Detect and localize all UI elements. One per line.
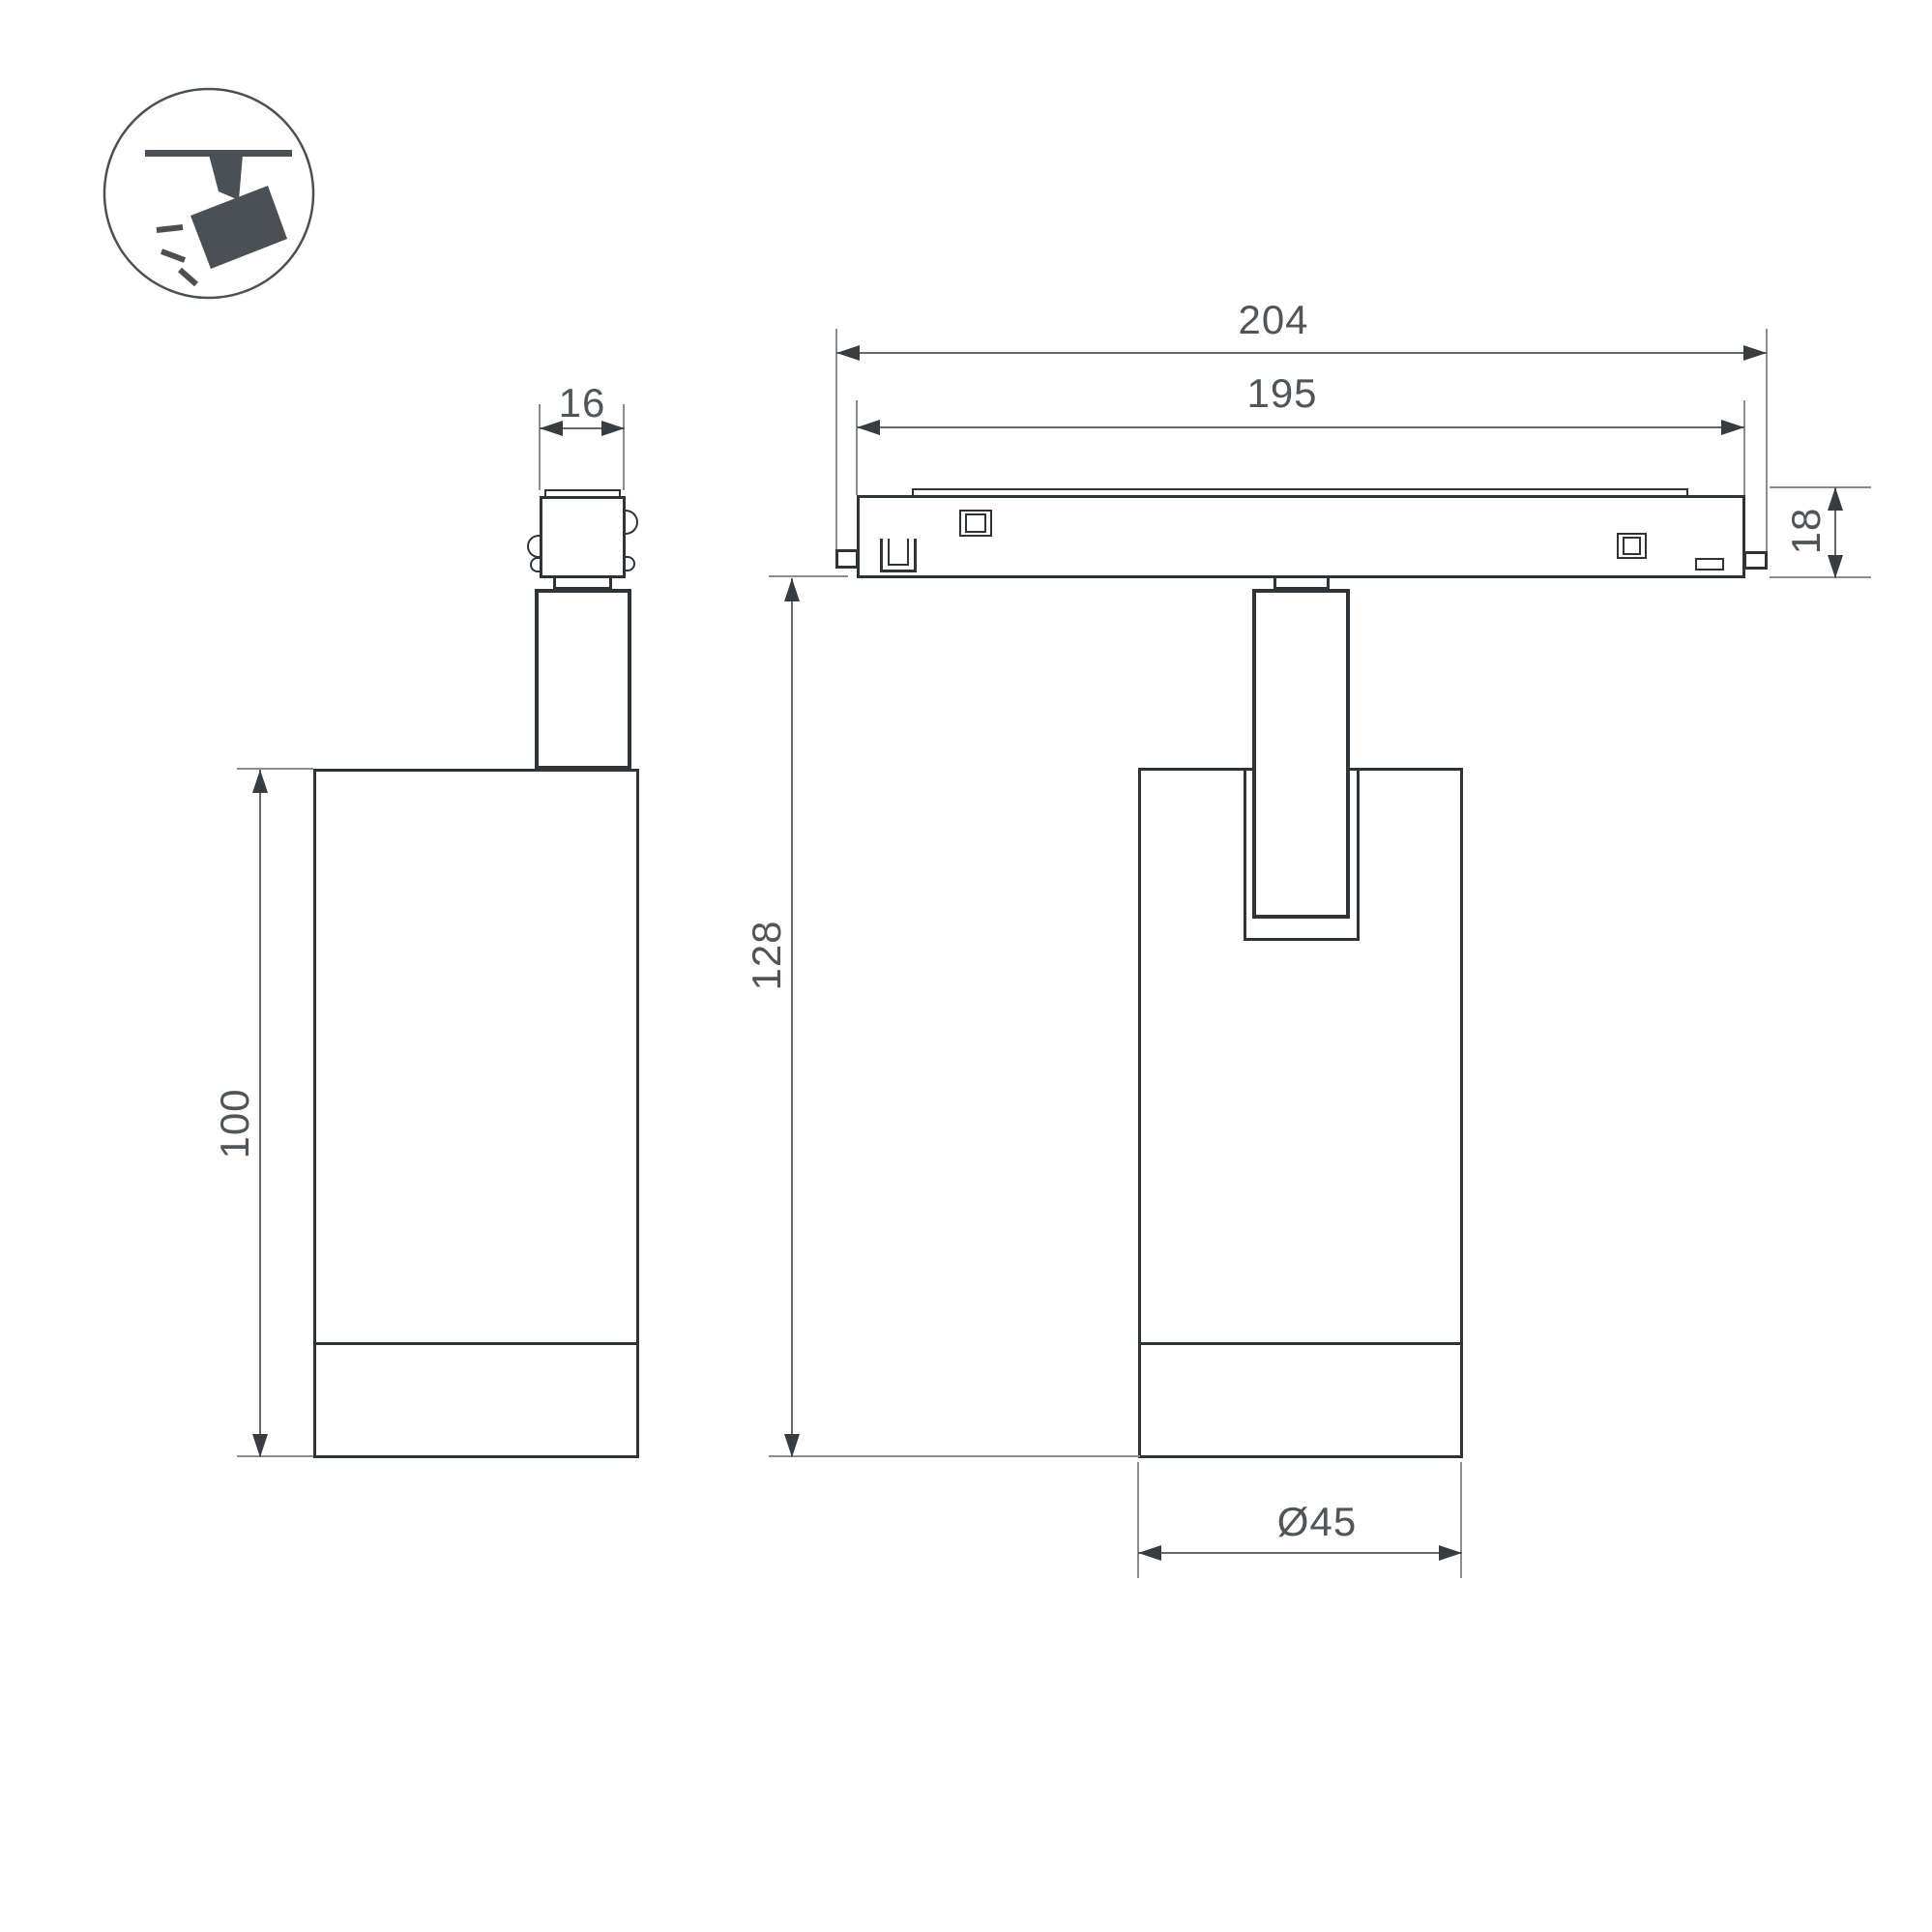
track-end-tab-right [1743, 551, 1768, 570]
track-end-tab-left [835, 549, 859, 569]
front-lamp-trim-line [1141, 1342, 1460, 1345]
dim-18-ext-top [1770, 486, 1871, 488]
dim-45-label: Ø45 [1277, 1502, 1357, 1542]
dim-100-ext-top [237, 768, 313, 770]
dim-204-ext-left [835, 329, 837, 549]
track-contact-right-inner [1623, 537, 1641, 555]
dim-100-arrow-down [252, 1434, 268, 1457]
side-pivot-arm [535, 589, 631, 770]
dim-18-label: 18 [1786, 508, 1827, 555]
track-spotlight-glyph [101, 85, 317, 302]
dim-128-ext-bottom [769, 1455, 1140, 1457]
dim-18-ext-bottom [1770, 576, 1871, 578]
side-neck [553, 575, 612, 590]
track-clip-inner [888, 539, 909, 566]
dim-45-arrow-right [1439, 1545, 1462, 1561]
front-neck [1273, 575, 1330, 590]
side-adapter-bump-right-large [625, 510, 638, 535]
dim-16-label: 16 [559, 383, 606, 424]
dim-45-ext-right [1460, 1462, 1462, 1578]
front-pivot-arm [1252, 589, 1350, 919]
dim-16-ext-right [623, 404, 625, 490]
track-contact-left-inner [965, 513, 986, 533]
dim-100-ext-bottom [237, 1455, 313, 1457]
dim-100-arrow-up [252, 770, 268, 793]
track-slot-detail [1695, 558, 1724, 571]
side-lamp-body [313, 769, 639, 1458]
dim-128-ext-top [769, 575, 848, 577]
ceiling-track-spotlight-icon [101, 85, 317, 302]
dim-204-line [836, 352, 1767, 354]
dim-204-ext-right [1766, 329, 1768, 551]
dim-128-arrow-down [784, 1434, 800, 1457]
side-adapter-bump-left-large [527, 535, 541, 558]
dim-195-ext-right [1743, 400, 1745, 495]
technical-drawing-canvas: 204 195 16 18 128 [0, 0, 1932, 1932]
dim-195-ext-left [856, 400, 858, 495]
dim-195-arrow-right [1721, 420, 1744, 435]
dim-16-ext-left [539, 404, 541, 490]
dim-45-ext-left [1137, 1462, 1139, 1578]
dim-204-arrow-right [1743, 345, 1767, 361]
dim-45-arrow-left [1138, 1545, 1161, 1561]
dim-128-arrow-up [784, 578, 800, 601]
side-adapter-bump-right-small [625, 556, 635, 571]
dim-45-line [1138, 1552, 1462, 1554]
dim-204-arrow-left [836, 345, 860, 361]
side-lamp-trim-line [316, 1342, 636, 1345]
dim-195-label: 195 [1246, 373, 1317, 414]
side-track-adapter [540, 496, 626, 578]
track-body [857, 495, 1745, 578]
dim-100-label: 100 [215, 1088, 255, 1158]
dim-100-line [259, 770, 261, 1457]
dim-195-line [857, 426, 1744, 428]
dim-195-arrow-left [857, 420, 880, 435]
dim-128-line [791, 578, 793, 1457]
dim-204-label: 204 [1238, 300, 1308, 340]
dim-18-arrow-up [1828, 487, 1843, 511]
dim-18-arrow-down [1828, 555, 1843, 578]
dim-128-label: 128 [746, 920, 787, 990]
